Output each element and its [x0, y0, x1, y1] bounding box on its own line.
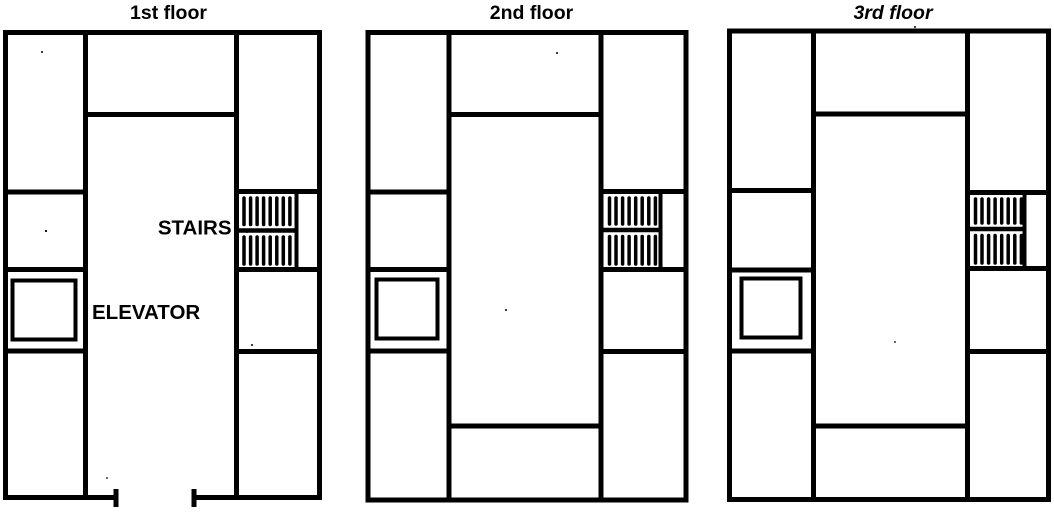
- svg-text:3rd floor: 3rd floor: [853, 2, 933, 24]
- svg-text:2nd floor: 2nd floor: [490, 2, 574, 24]
- svg-text:STAIRS: STAIRS: [158, 217, 232, 240]
- svg-text:1st floor: 1st floor: [130, 2, 207, 24]
- svg-text:ELEVATOR: ELEVATOR: [92, 301, 200, 324]
